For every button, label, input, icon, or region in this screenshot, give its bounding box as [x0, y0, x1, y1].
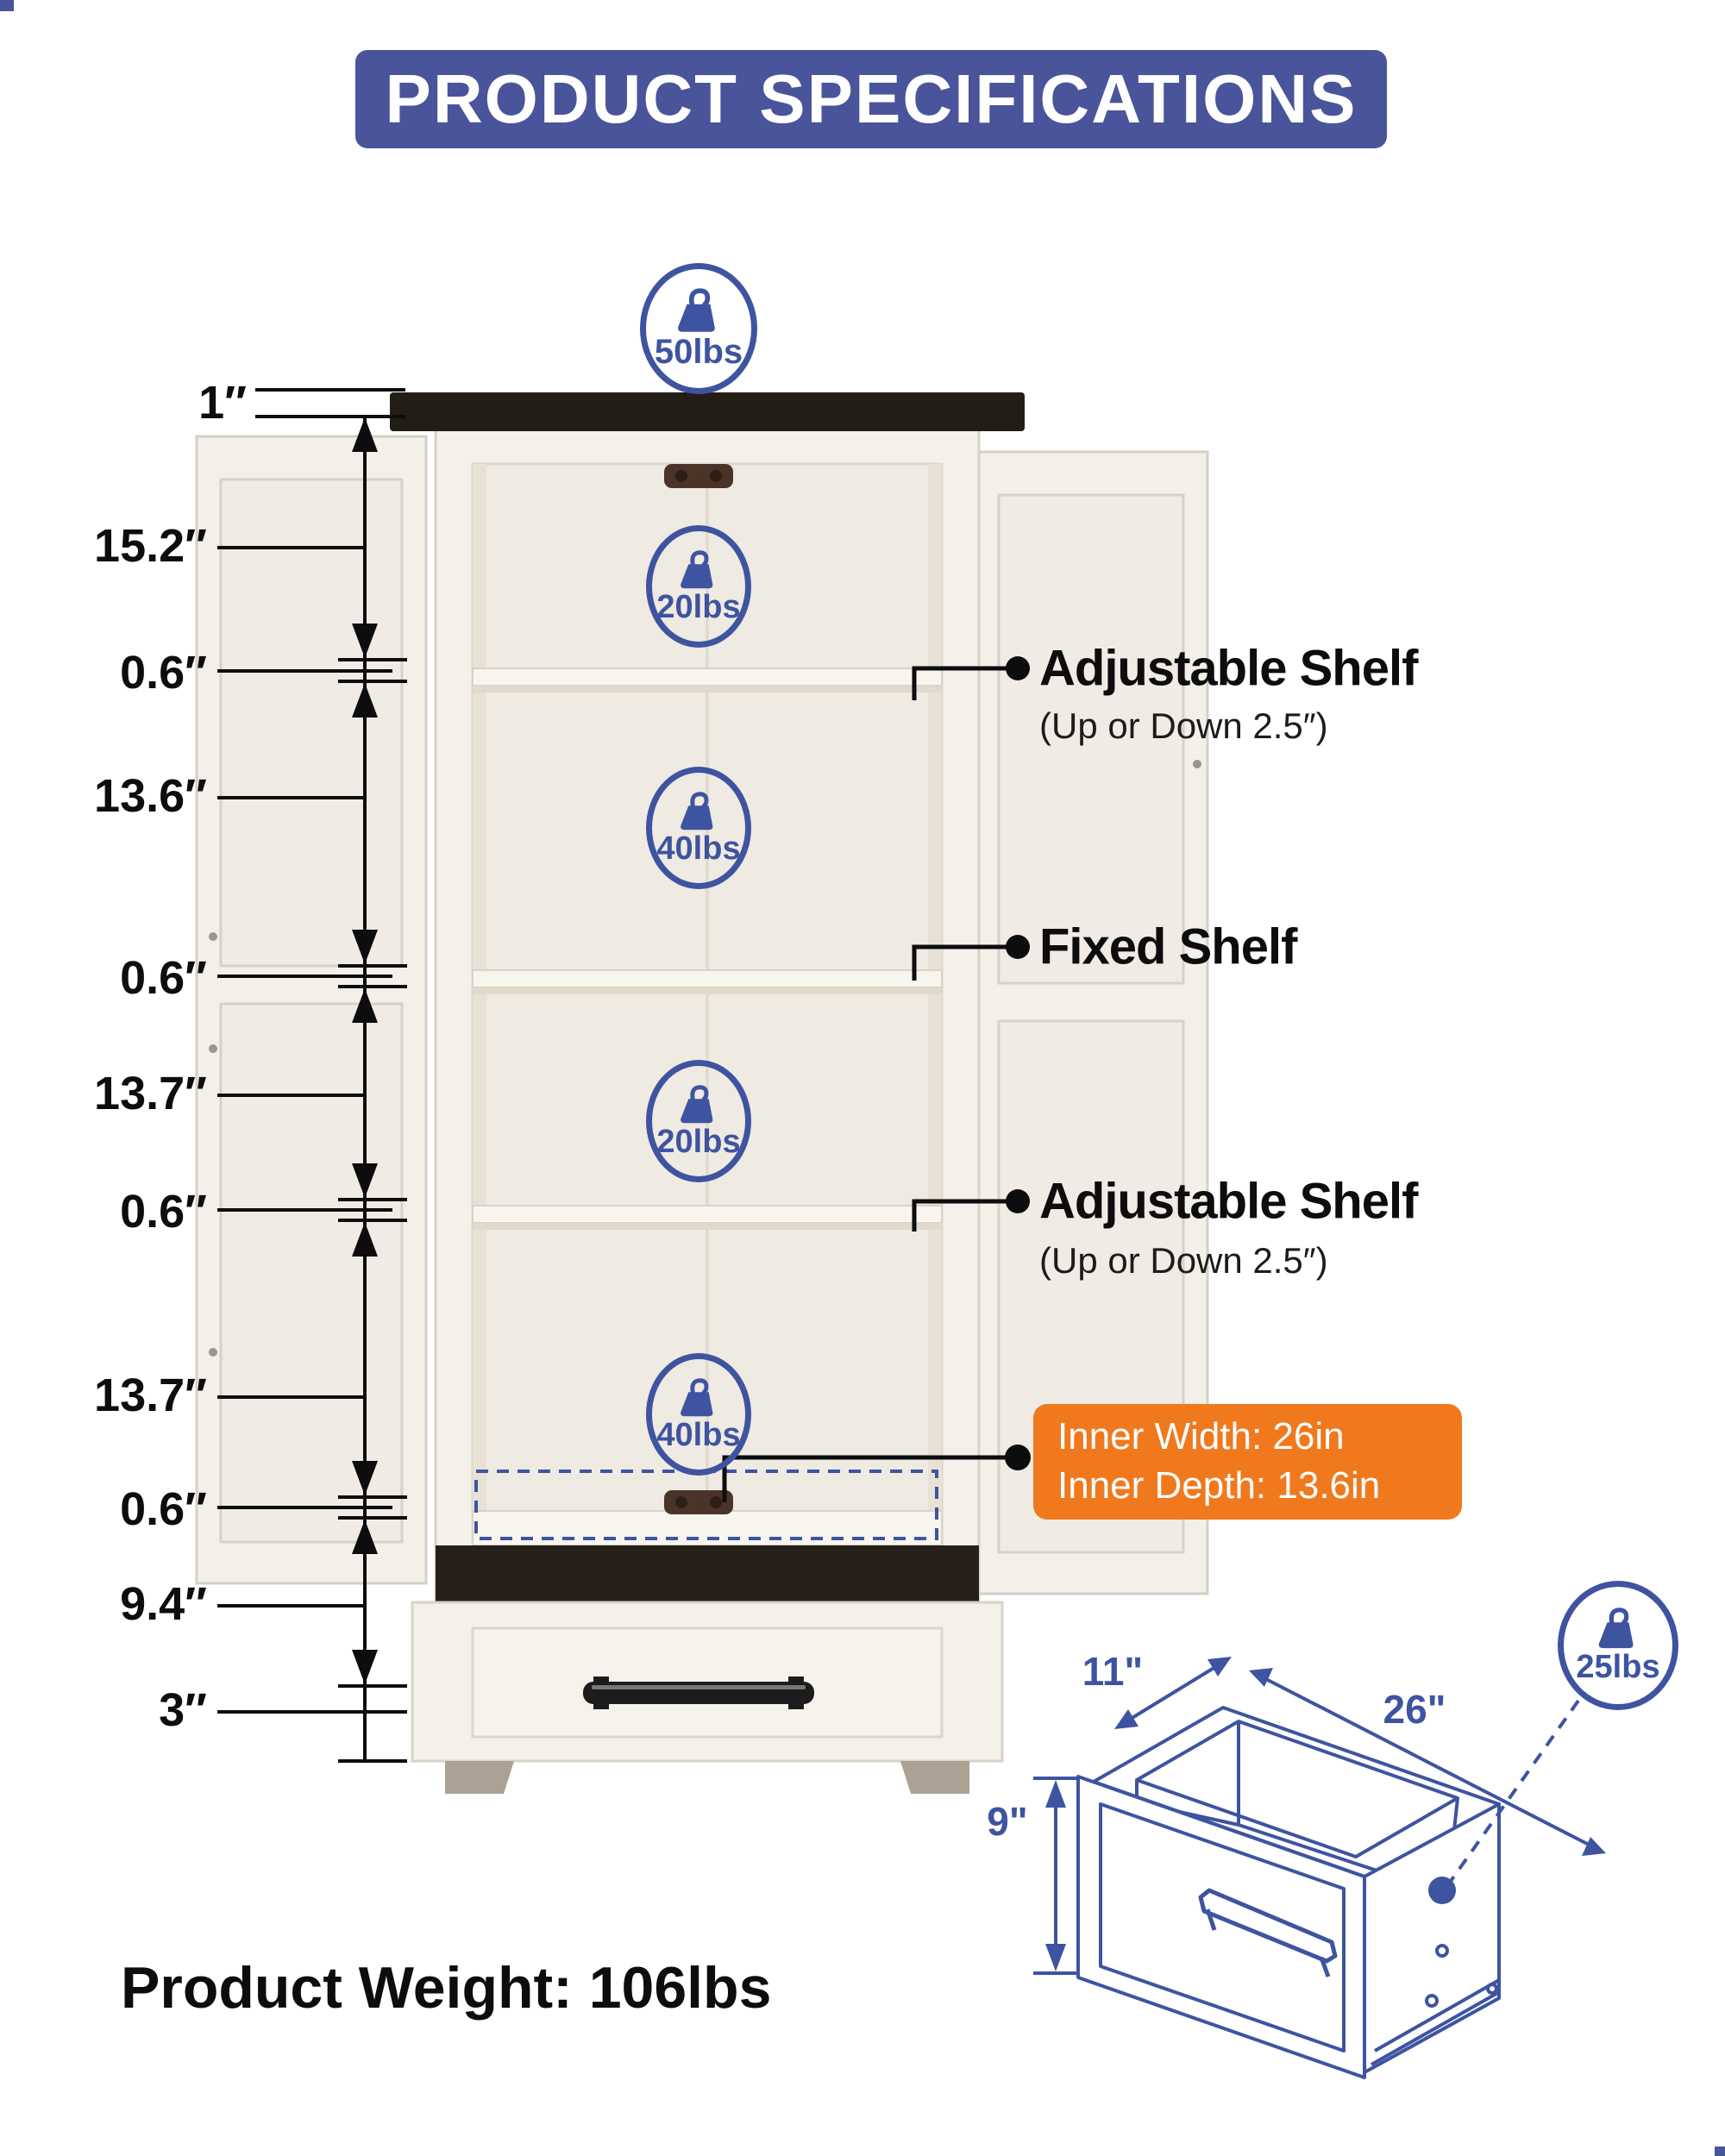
capacity-badge-label: 20lbs: [656, 1125, 740, 1158]
capacity-badge-label: 25lbs: [1576, 1651, 1659, 1683]
cabinet-bottom-board: [436, 1545, 979, 1602]
capacity-badge-shelf-4: 40lbs: [646, 1353, 751, 1476]
dim-label-section-4: 13.7″: [94, 1369, 207, 1422]
cabinet-drawer-front: [412, 1602, 1002, 1761]
dim-label-shelf-2: 0.6″: [120, 951, 207, 1005]
weight-icon: [672, 288, 725, 335]
inner-depth-text: Inner Depth: 13.6in: [1057, 1464, 1462, 1508]
callout-fixed-shelf: Fixed Shelf: [1039, 918, 1296, 976]
dim-label-base: 3″: [159, 1683, 207, 1737]
callout-adjustable-shelf-bottom-subtitle: (Up or Down 2.5″): [1039, 1240, 1328, 1282]
dim-label-section-3: 13.7″: [94, 1067, 207, 1120]
capacity-badge-label: 20lbs: [656, 591, 740, 624]
drawer-capacity-dot: [1428, 1877, 1456, 1904]
dim-label-section-2: 13.6″: [94, 769, 207, 823]
inner-dimensions-box: Inner Width: 26in Inner Depth: 13.6in: [1033, 1404, 1462, 1520]
callout-adjustable-shelf-bottom: Adjustable Shelf: [1039, 1173, 1417, 1231]
product-specifications-page: PRODUCT SPECIFICATIONS 50lbs 20lbs 40lbs…: [0, 0, 1725, 2156]
capacity-badge-top: 50lbs: [640, 263, 757, 394]
dim-label-drawer: 9.4″: [120, 1577, 207, 1631]
callout-adjustable-shelf-top: Adjustable Shelf: [1039, 640, 1417, 698]
shelf-adjustable-top: [473, 668, 942, 693]
capacity-badge-shelf-1: 20lbs: [646, 525, 751, 648]
cabinet-foot-right: [900, 1761, 969, 1794]
drawer-height-dimension: [1033, 1778, 1080, 1973]
capacity-badge-shelf-2: 40lbs: [646, 767, 751, 889]
dim-label-shelf-3: 0.6″: [120, 1185, 207, 1238]
corner-mark-top-left: [0, 0, 14, 11]
capacity-badge-label: 40lbs: [656, 1419, 740, 1451]
diagram-artwork: [0, 0, 1725, 2156]
product-weight-text: Product Weight: 106lbs: [121, 1954, 771, 2021]
weight-icon: [675, 792, 722, 832]
page-title: PRODUCT SPECIFICATIONS: [385, 60, 1357, 139]
capacity-badge-drawer: 25lbs: [1558, 1581, 1678, 1710]
dim-label-top-board: 1″: [198, 376, 247, 429]
top-hinge: [664, 464, 733, 488]
inner-width-text: Inner Width: 26in: [1057, 1415, 1462, 1459]
weight-icon: [1593, 1608, 1643, 1651]
title-banner: PRODUCT SPECIFICATIONS: [355, 50, 1387, 148]
cabinet-top-board: [390, 392, 1025, 431]
shelf-fixed: [473, 970, 942, 994]
capacity-badge-shelf-3: 20lbs: [646, 1060, 751, 1182]
cabinet-left-door: [197, 436, 426, 1583]
drawer-width-label: 26": [1383, 1686, 1446, 1733]
drawer-depth-label: 11": [1082, 1648, 1143, 1695]
weight-icon: [675, 1378, 722, 1419]
capacity-badge-label: 50lbs: [655, 335, 743, 369]
drawer-height-label: 9": [987, 1798, 1027, 1845]
dim-label-bottom: 0.6″: [120, 1482, 207, 1536]
weight-icon: [675, 1085, 722, 1125]
dim-label-shelf-1: 0.6″: [120, 646, 207, 699]
weight-icon: [675, 550, 722, 591]
capacity-badge-label: 40lbs: [656, 832, 740, 865]
drawer-line-art: [1033, 1657, 1606, 2078]
callout-adjustable-shelf-top-subtitle: (Up or Down 2.5″): [1039, 705, 1328, 747]
shelf-adjustable-bottom: [473, 1206, 942, 1230]
dim-label-section-1: 15.2″: [94, 519, 207, 573]
corner-mark-bottom-right: [1715, 2147, 1725, 2156]
cabinet-foot-left: [445, 1761, 514, 1794]
